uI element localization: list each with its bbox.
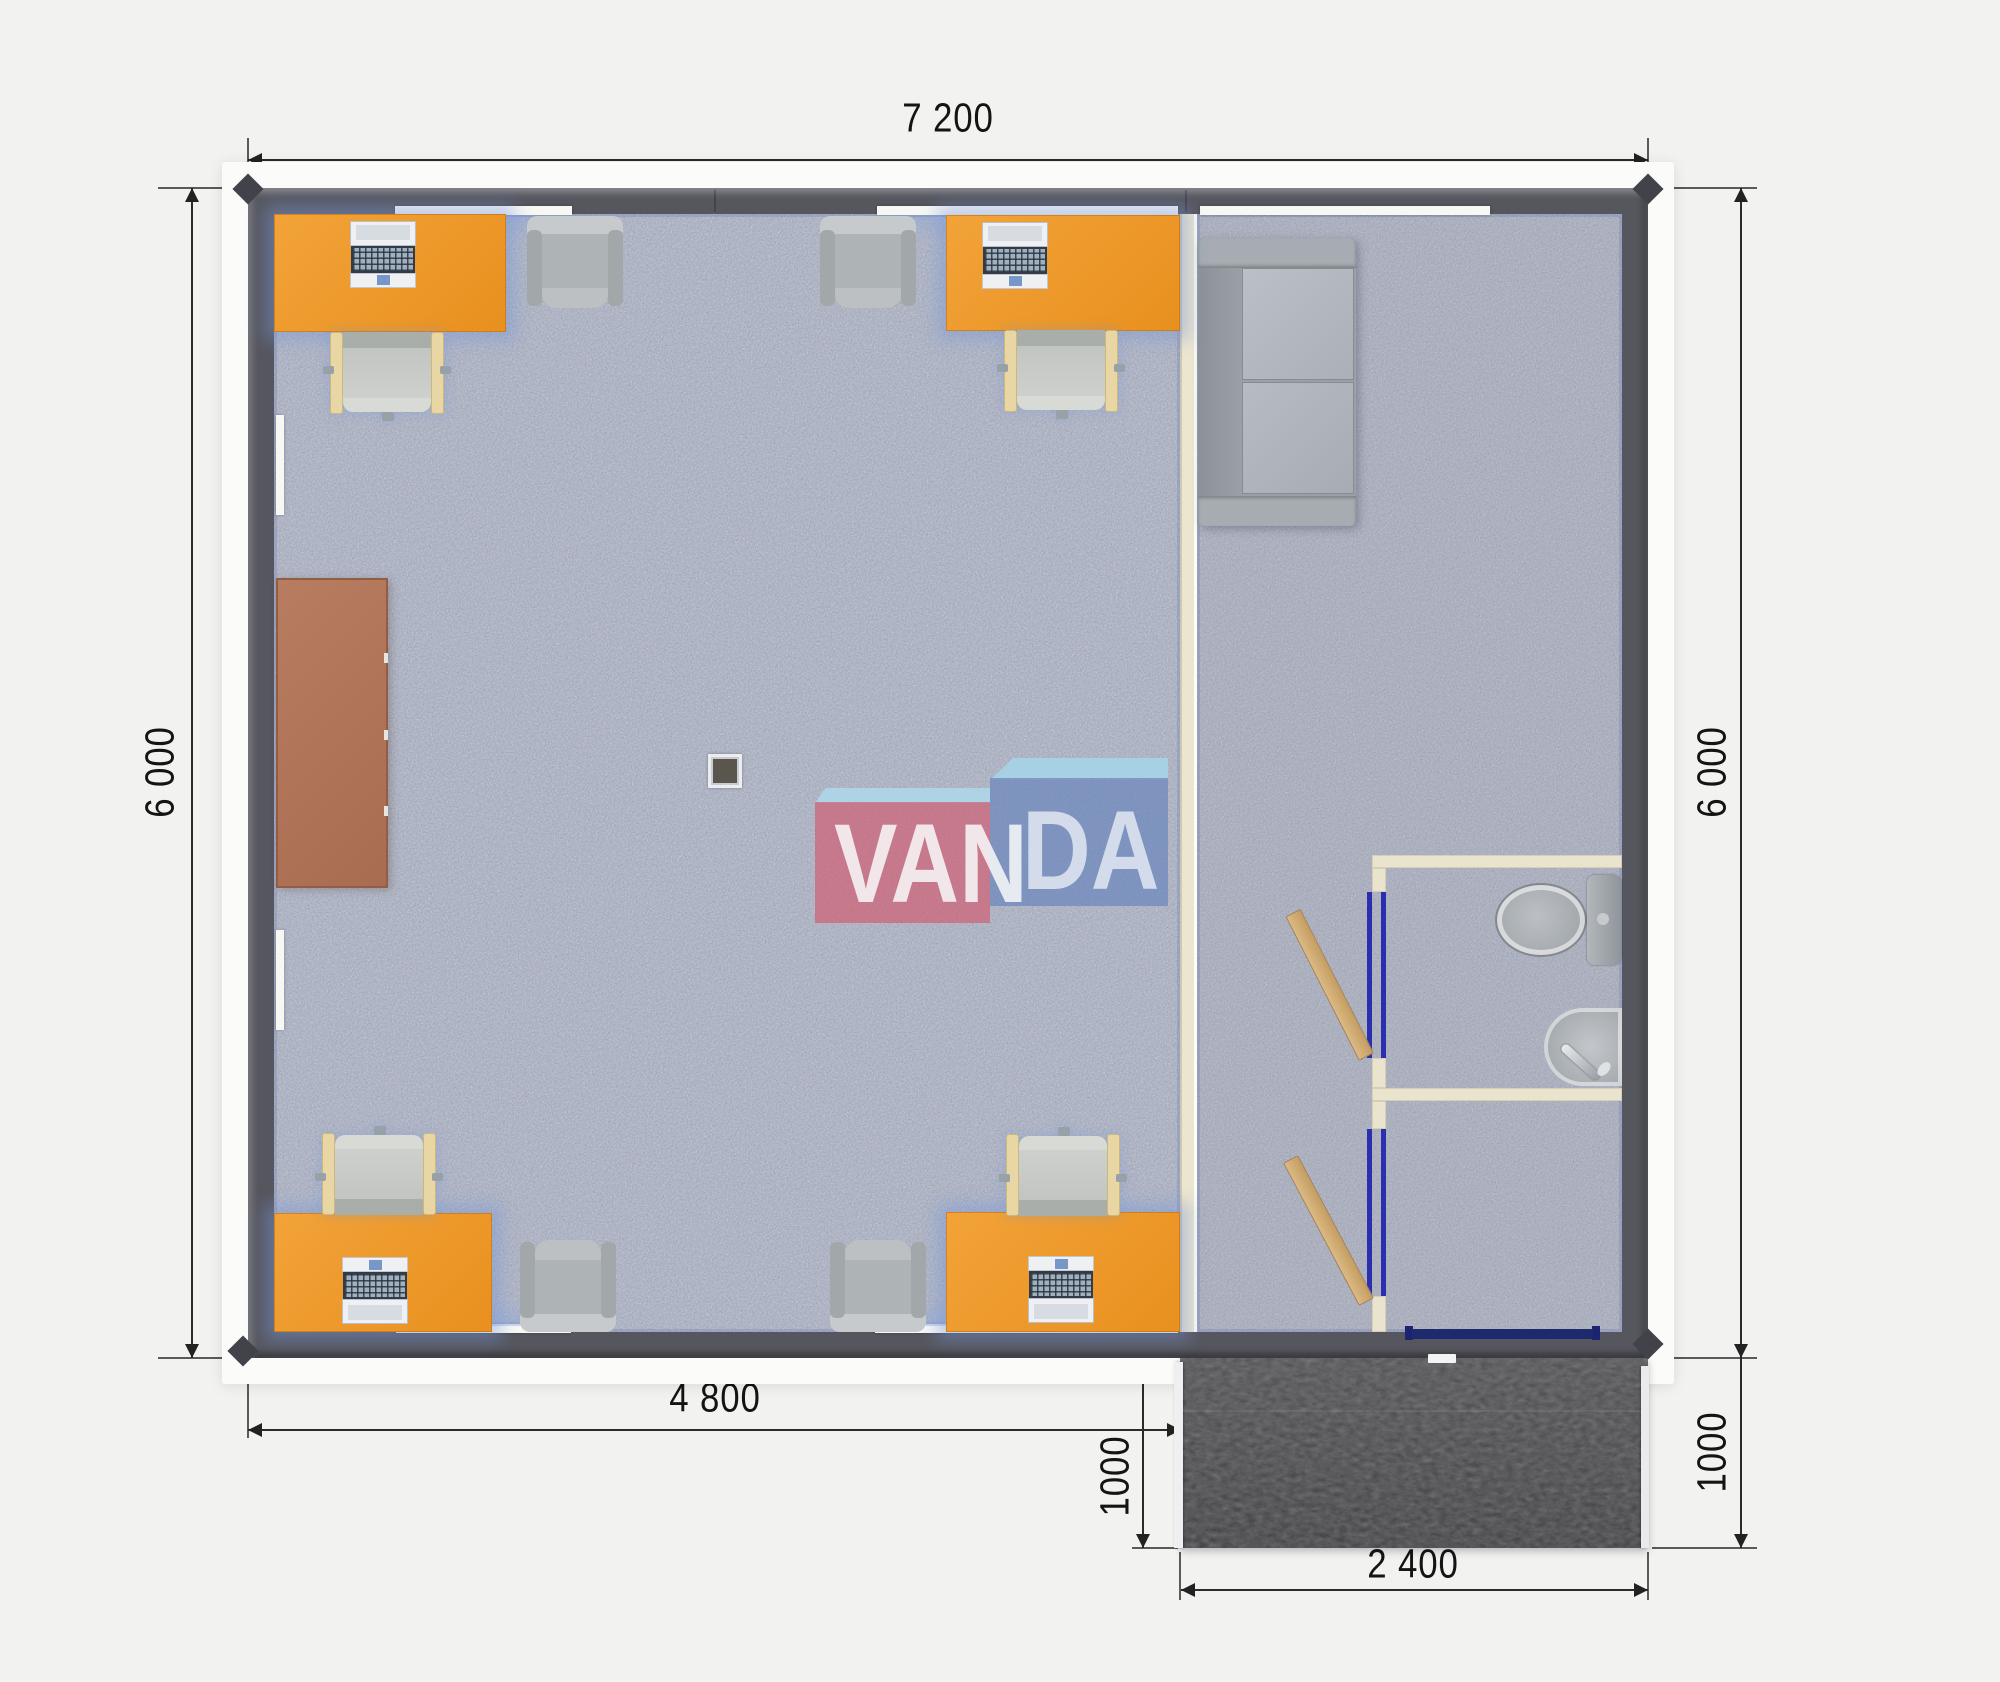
door-frame (1367, 892, 1372, 1058)
computer-icon (350, 221, 416, 288)
table-edge-mark (384, 730, 388, 740)
window (276, 415, 284, 515)
porch-texture (1180, 1358, 1648, 1548)
armchair (830, 1234, 926, 1332)
office-chair (322, 1127, 436, 1215)
monitor (350, 221, 416, 246)
arrowhead-icon (185, 188, 199, 202)
floor-plan-canvas: 7 200 6 000 6 000 1000 4 800 1000 2 400 (0, 0, 2000, 1682)
arrowhead-icon (248, 1423, 262, 1437)
meeting-table (276, 578, 388, 888)
desk-bottom-left (274, 1213, 492, 1332)
desk-top-right (946, 215, 1180, 331)
arrowhead-icon (1734, 1534, 1748, 1548)
window (877, 206, 1178, 215)
office-chair (1006, 1128, 1120, 1216)
monitor (1028, 1298, 1094, 1323)
bathroom-wall-divider (1372, 1088, 1622, 1101)
dim-line-bottom (248, 1429, 1181, 1431)
keyboard (1029, 1271, 1093, 1298)
keyboard (351, 246, 415, 273)
sofa (1198, 238, 1356, 526)
dim-line-right (1740, 188, 1742, 1358)
wall-module-seam (1185, 190, 1187, 212)
porch-step-line (1180, 1410, 1648, 1412)
entry-threshold (1412, 1329, 1593, 1339)
dim-label-porch-right: 1000 (1689, 1412, 1736, 1493)
dim-label-porch-left: 1000 (1092, 1436, 1139, 1517)
dim-line-top (248, 159, 1648, 161)
monitor (342, 1299, 408, 1324)
wc-wall-west (1372, 1296, 1386, 1332)
arrowhead-icon (1634, 1583, 1648, 1597)
logo-text-right: DA (1022, 795, 1160, 907)
sofa-backrest (1198, 238, 1242, 526)
bathroom-wall-west (1372, 1058, 1386, 1088)
column-core (711, 757, 739, 785)
sofa-cushion (1242, 268, 1354, 380)
arrowhead-icon (1734, 188, 1748, 202)
dim-label-left: 6 000 (137, 726, 184, 817)
dim-line-left (191, 188, 193, 1358)
logo-text-left: VAN (834, 808, 1028, 920)
dim-label-right: 6 000 (1689, 726, 1736, 817)
table-edge-mark (384, 806, 388, 816)
sofa-armrest (1198, 496, 1356, 526)
bathroom-wall-top (1372, 855, 1622, 868)
system-unit (1028, 1256, 1094, 1271)
entry-door-handle (1428, 1354, 1456, 1363)
arrowhead-icon (1181, 1583, 1195, 1597)
sink-basin (1544, 1008, 1622, 1086)
system-unit (342, 1257, 408, 1272)
desk-bottom-right (946, 1212, 1180, 1332)
dim-line-porch-bottom (1181, 1589, 1648, 1591)
column (708, 754, 742, 788)
armchair (527, 216, 623, 314)
window (1200, 206, 1490, 215)
keyboard (343, 1272, 407, 1299)
sink-icon (1544, 1008, 1622, 1086)
computer-icon (1028, 1256, 1094, 1323)
door-frame (1367, 1129, 1372, 1296)
table-edge-mark (384, 653, 388, 663)
computer-icon (982, 222, 1048, 289)
monitor (982, 222, 1048, 247)
window (276, 930, 284, 1030)
dim-line-right-porch (1740, 1358, 1742, 1548)
armchair (820, 216, 916, 314)
partition-wall (1180, 214, 1197, 1332)
office-chair (330, 332, 444, 420)
toilet-icon (1495, 875, 1623, 965)
porch-trim-right (1641, 1366, 1649, 1548)
vanda-logo: VAN DA (810, 755, 1180, 930)
door-frame (1381, 892, 1386, 1058)
dim-label-top: 7 200 (902, 95, 993, 142)
door-frame (1381, 1129, 1386, 1296)
bathroom-wall-west (1372, 868, 1386, 892)
desk-top-left (274, 214, 506, 332)
entry-porch (1180, 1358, 1648, 1548)
sofa-cushion (1242, 382, 1354, 494)
system-unit (350, 273, 416, 288)
system-unit (982, 274, 1048, 289)
logo-bevel (990, 758, 1168, 780)
porch-trim-left (1174, 1362, 1183, 1548)
armchair (520, 1234, 616, 1332)
toilet-bowl (1495, 883, 1587, 957)
computer-icon (342, 1257, 408, 1324)
arrowhead-icon (1136, 1534, 1150, 1548)
entry-jamb (1592, 1326, 1600, 1340)
arrowhead-icon (185, 1344, 199, 1358)
wc-wall-west (1372, 1101, 1386, 1129)
sofa-armrest (1198, 238, 1356, 268)
keyboard (983, 247, 1047, 274)
dim-line-porch-left (1142, 1362, 1144, 1548)
office-chair (1004, 330, 1118, 418)
wall-module-seam (714, 190, 716, 212)
arrowhead-icon (1734, 1344, 1748, 1358)
flush-button (1597, 913, 1609, 925)
